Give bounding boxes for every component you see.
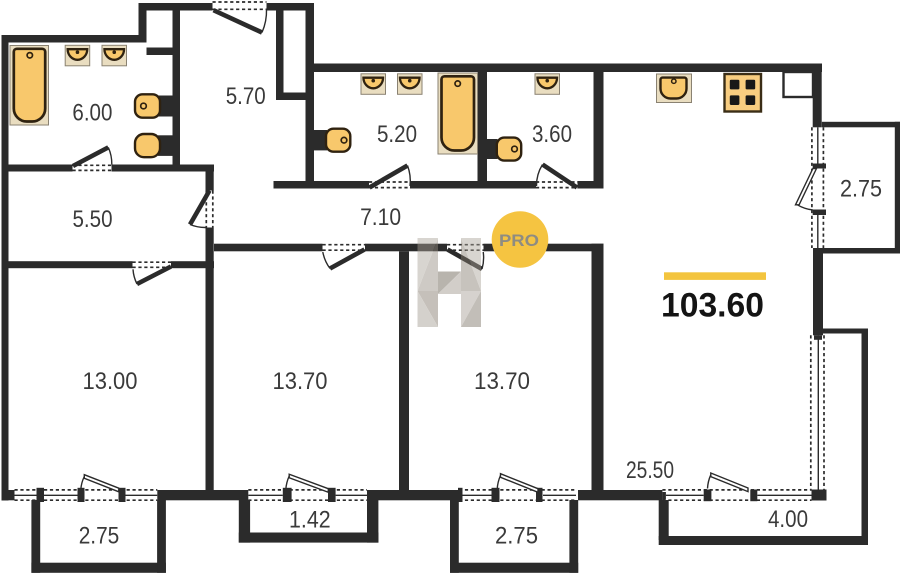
svg-text:13.70: 13.70 xyxy=(474,368,530,395)
svg-text:3.60: 3.60 xyxy=(532,121,572,148)
svg-text:5.70: 5.70 xyxy=(226,83,266,110)
svg-text:7.10: 7.10 xyxy=(360,204,401,231)
svg-text:4.00: 4.00 xyxy=(768,506,808,533)
svg-text:2.75: 2.75 xyxy=(840,176,882,203)
svg-text:13.70: 13.70 xyxy=(273,368,328,395)
svg-text:25.50: 25.50 xyxy=(626,457,674,484)
svg-text:PRO: PRO xyxy=(499,231,539,250)
svg-text:2.75: 2.75 xyxy=(495,523,538,550)
svg-text:5.50: 5.50 xyxy=(73,206,113,233)
svg-text:5.20: 5.20 xyxy=(377,121,417,148)
svg-text:6.00: 6.00 xyxy=(72,100,112,127)
svg-text:103.60: 103.60 xyxy=(661,287,764,325)
svg-text:1.42: 1.42 xyxy=(289,506,331,533)
svg-text:2.75: 2.75 xyxy=(79,523,120,550)
svg-text:13.00: 13.00 xyxy=(83,368,138,395)
